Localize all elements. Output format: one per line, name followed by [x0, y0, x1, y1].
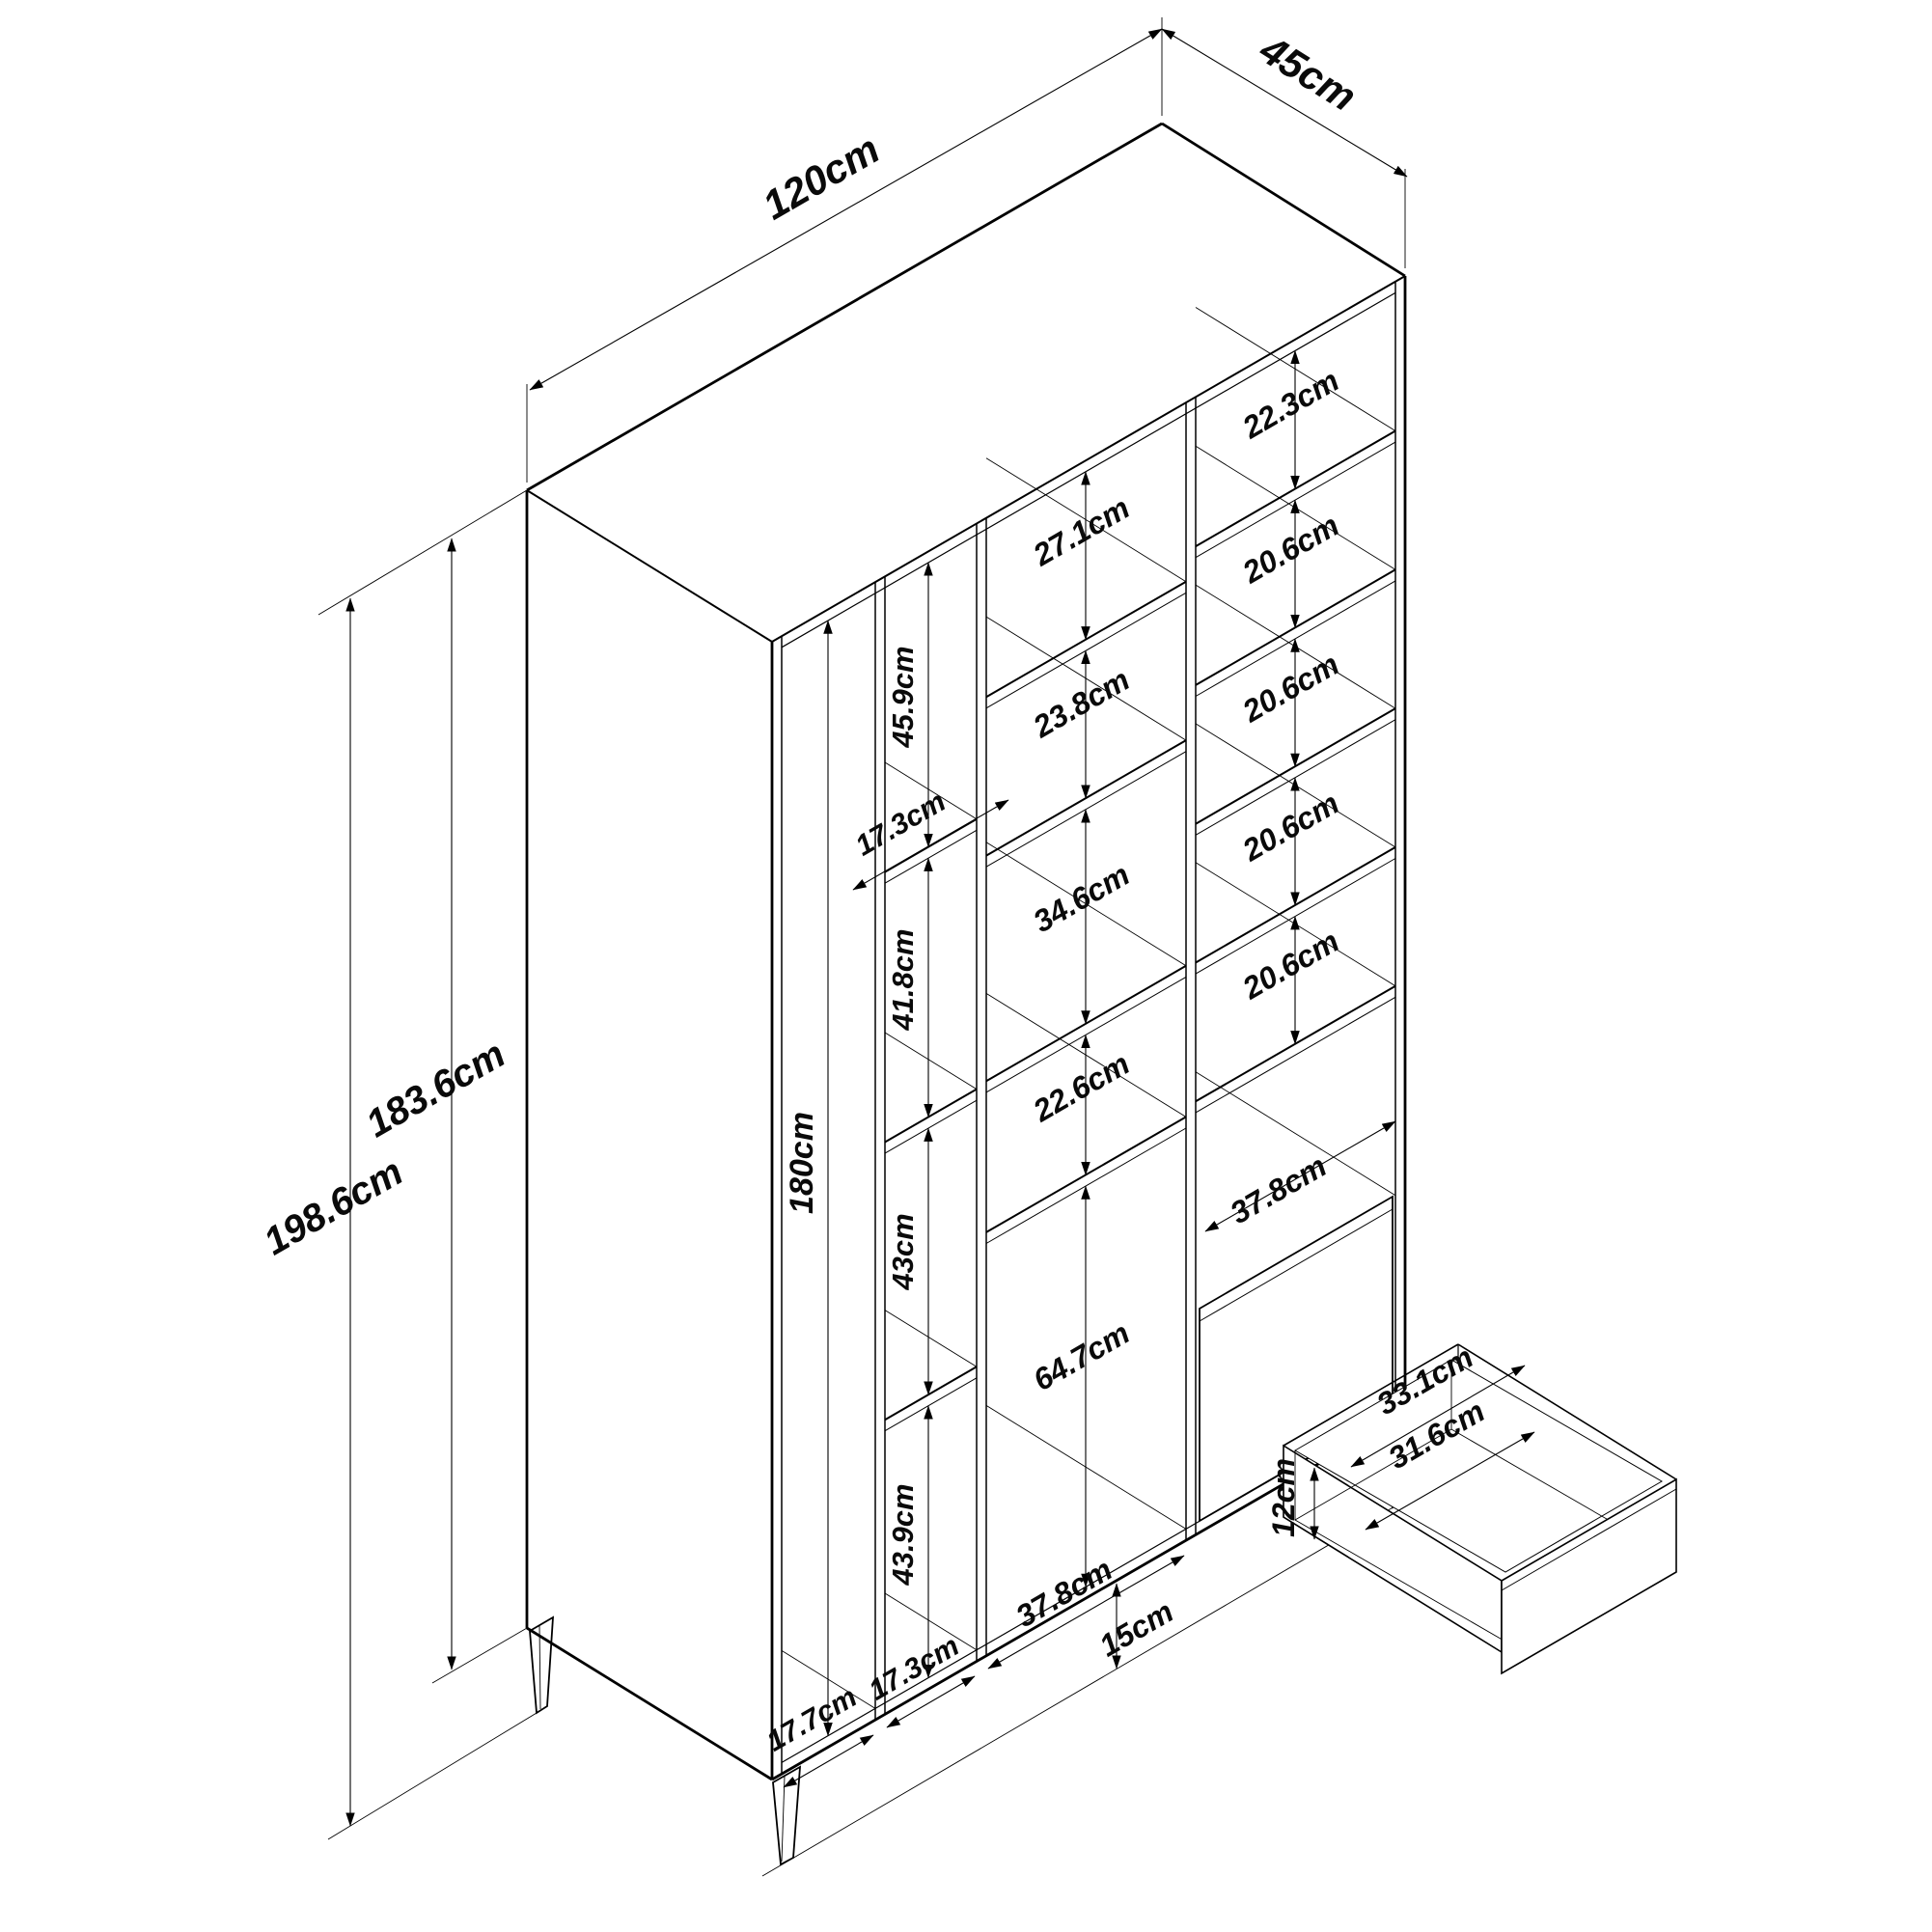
dim-overall-depth: 45cm: [1252, 26, 1365, 120]
wardrobe-dimension-diagram: 120cm 45cm 198.6cm 183.6cm 180cm 45.9cm …: [0, 0, 1932, 1932]
dim-overall-width: 120cm: [755, 125, 887, 228]
dim-total-height: 198.6cm: [257, 1150, 410, 1263]
diagram-canvas: 120cm 45cm 198.6cm 183.6cm 180cm 45.9cm …: [0, 0, 1932, 1932]
dim-narrow-section-4: 43.9cm: [886, 1483, 920, 1586]
dim-narrow-section-1: 45.9cm: [886, 646, 920, 748]
dim-leg-height: 15cm: [1093, 1593, 1179, 1663]
dim-body-height: 183.6cm: [359, 1033, 512, 1145]
dim-narrow-section-2: 41.8cm: [886, 928, 920, 1031]
dim-narrow-section-3: 43cm: [886, 1213, 920, 1290]
dim-door-inner-height: 180cm: [784, 1112, 820, 1214]
dim-drawer-inner-depth: 12cm: [1266, 1458, 1301, 1537]
